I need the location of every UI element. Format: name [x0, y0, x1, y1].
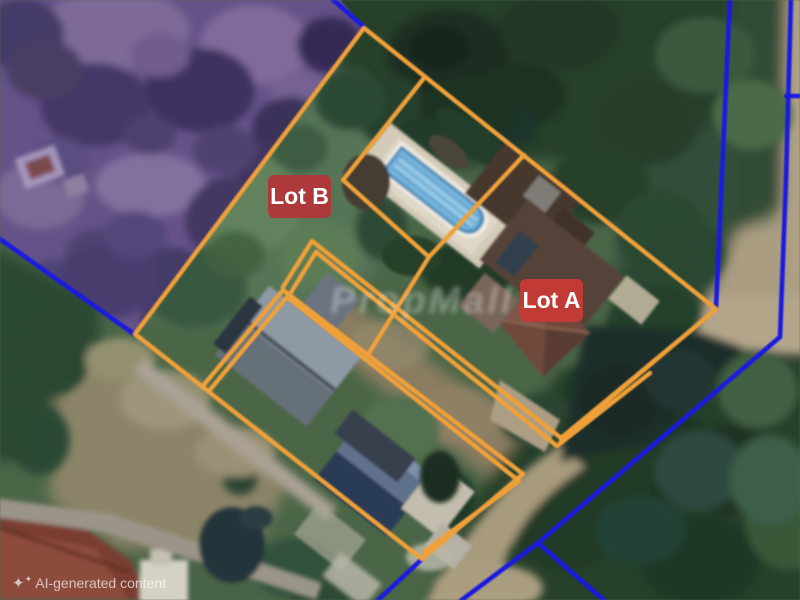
svg-text:PropMall: PropMall	[330, 280, 514, 322]
